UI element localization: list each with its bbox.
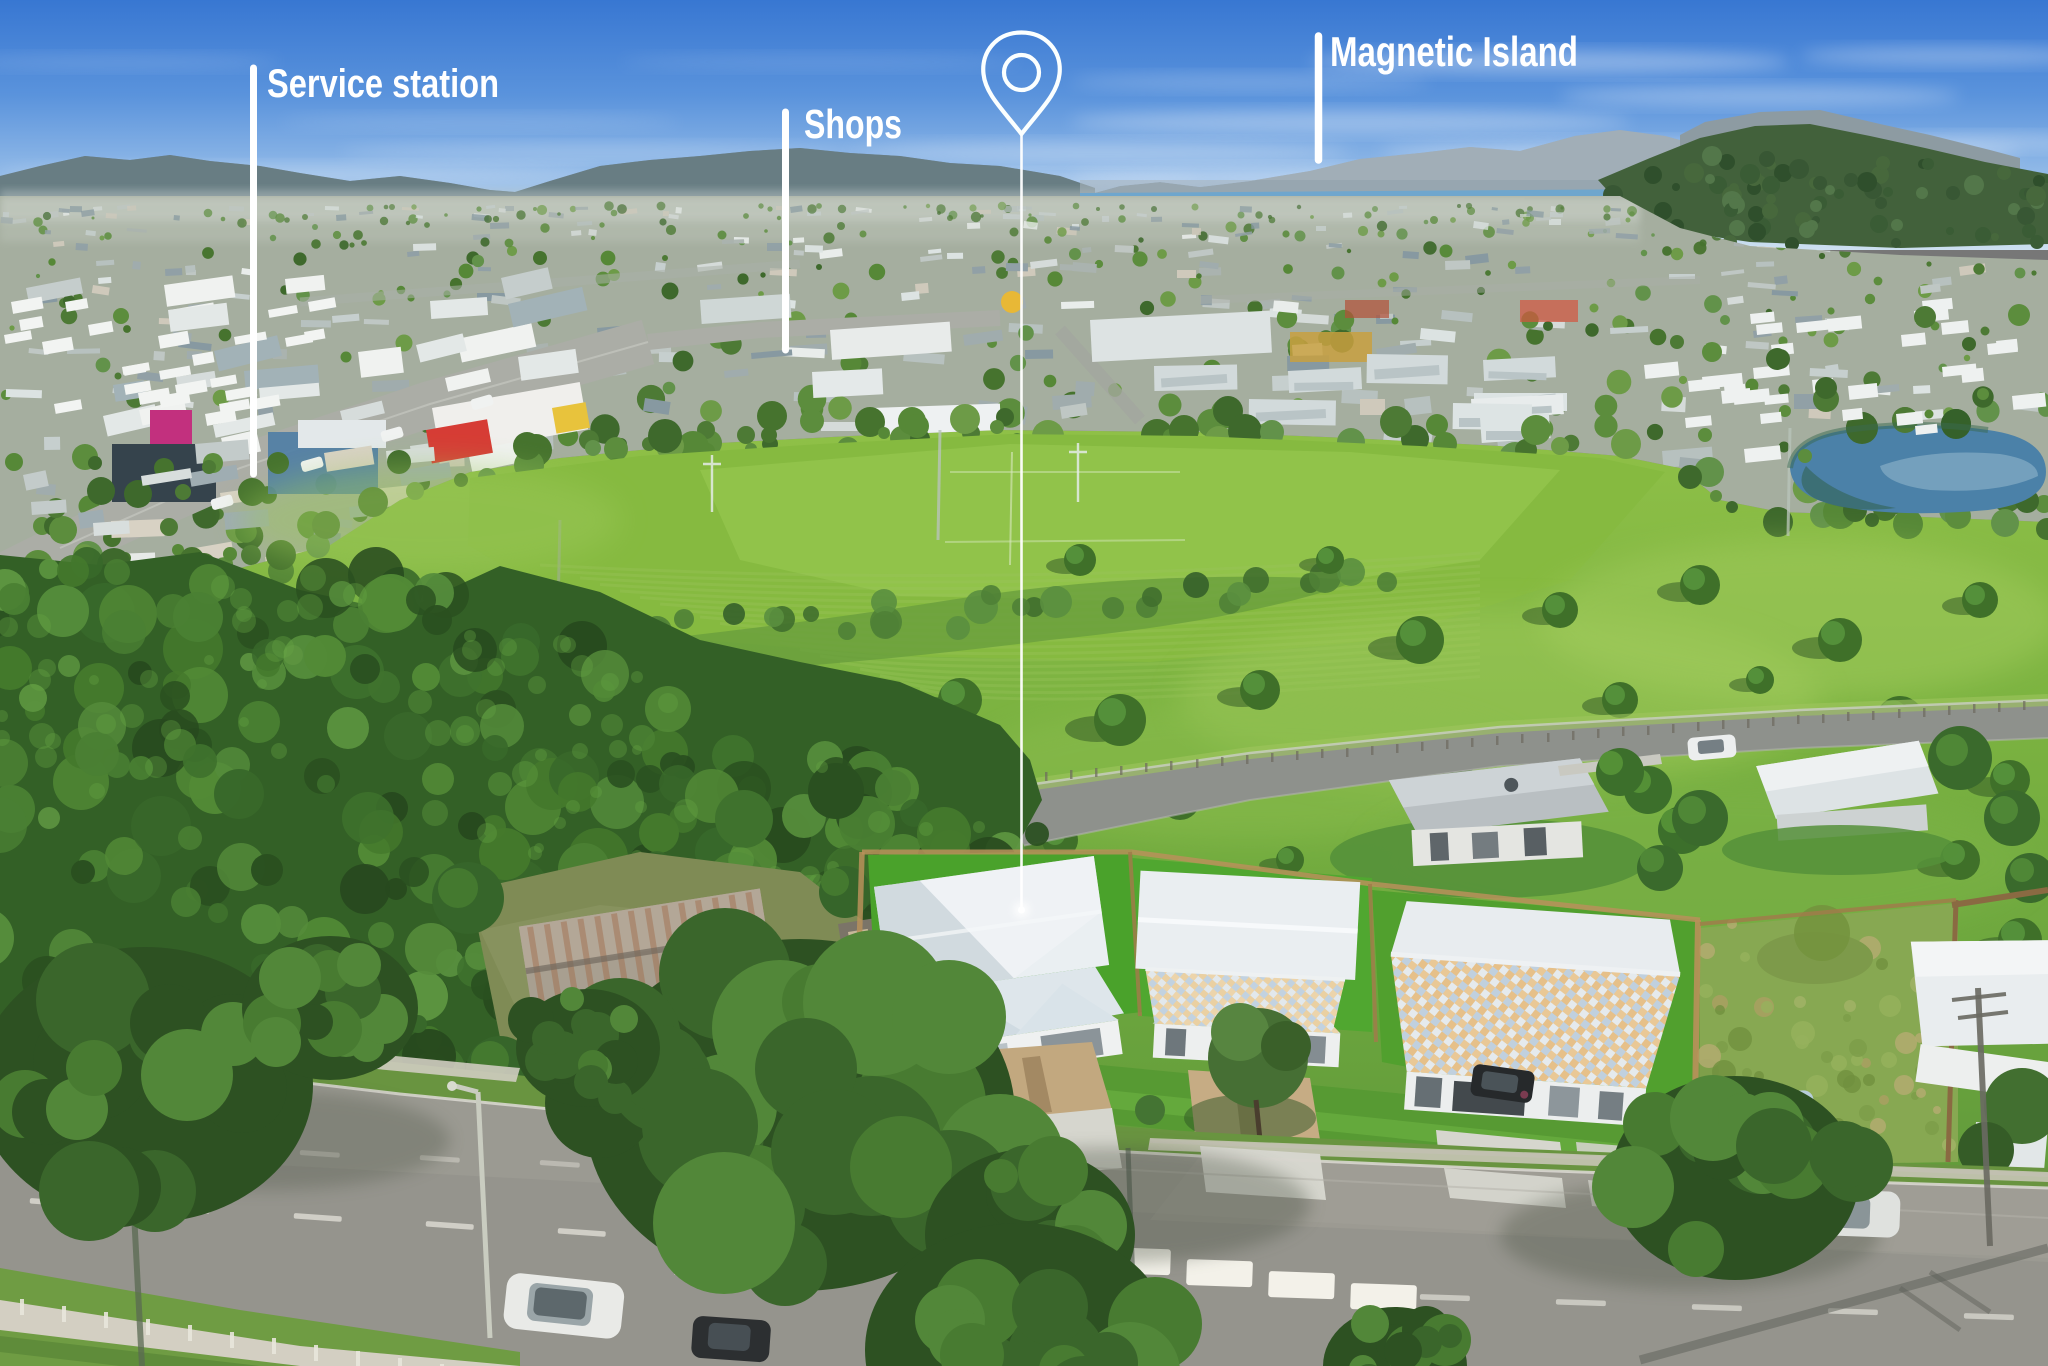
svg-text:Magnetic Island: Magnetic Island	[1330, 28, 1578, 75]
svg-text:Service station: Service station	[267, 62, 499, 106]
svg-text:Shops: Shops	[804, 101, 902, 147]
